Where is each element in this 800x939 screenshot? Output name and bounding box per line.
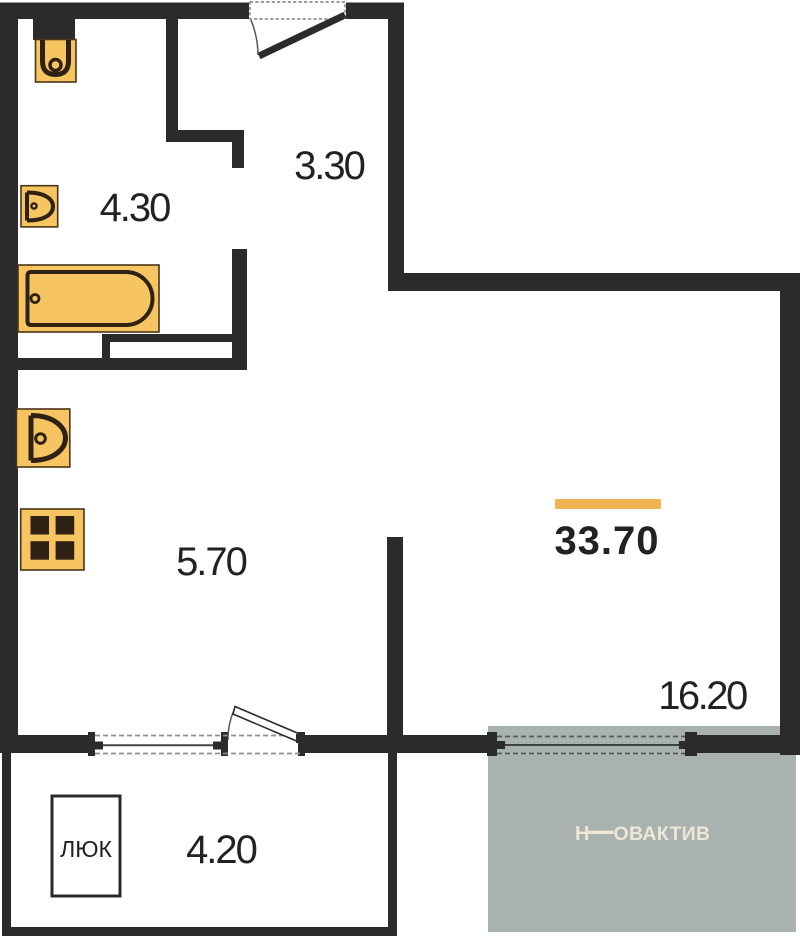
svg-text:33.70: 33.70 bbox=[554, 519, 659, 563]
svg-text:4.20: 4.20 bbox=[186, 828, 257, 872]
svg-text:4.30: 4.30 bbox=[100, 186, 171, 230]
svg-text:16.20: 16.20 bbox=[658, 674, 747, 718]
svg-text:5.70: 5.70 bbox=[176, 540, 247, 584]
svg-text:3.30: 3.30 bbox=[294, 144, 365, 188]
svg-text:ЛЮК: ЛЮК bbox=[60, 836, 112, 862]
svg-text:ОВАКТИВ: ОВАКТИВ bbox=[614, 823, 711, 845]
